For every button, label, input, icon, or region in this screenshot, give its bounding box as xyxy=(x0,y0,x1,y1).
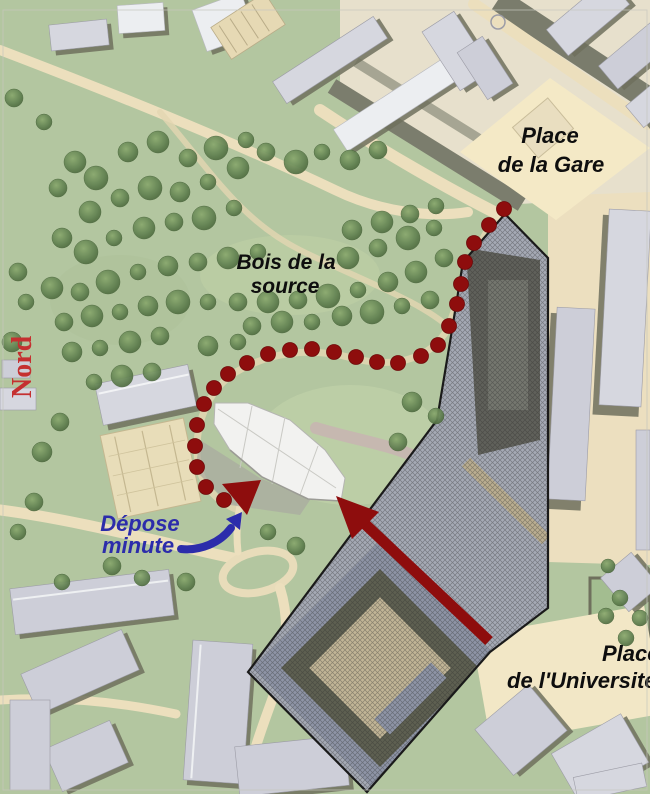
tree xyxy=(340,150,360,170)
tree xyxy=(10,524,26,540)
tree xyxy=(227,157,249,179)
route-dot xyxy=(190,460,205,475)
tree xyxy=(25,493,43,511)
tree xyxy=(612,590,628,606)
tree xyxy=(158,256,178,276)
tree xyxy=(271,311,293,333)
tree xyxy=(18,294,34,310)
site-plan-map: Place de la Gare Bois de la source Nord … xyxy=(0,0,650,794)
route-dot xyxy=(391,356,406,371)
tree xyxy=(138,176,162,200)
tree xyxy=(428,198,444,214)
route-dot xyxy=(414,349,429,364)
tree xyxy=(81,305,103,327)
tree xyxy=(119,331,141,353)
buildings-bottom-left-part xyxy=(10,700,50,790)
tree xyxy=(243,317,261,335)
label-universite-line1: Place xyxy=(602,641,650,666)
tree xyxy=(133,217,155,239)
tree xyxy=(111,189,129,207)
tree xyxy=(428,408,444,424)
tree xyxy=(32,442,52,462)
route-dot xyxy=(188,439,203,454)
tree xyxy=(118,142,138,162)
route-dot xyxy=(199,480,214,495)
tree xyxy=(51,413,69,431)
tree xyxy=(84,166,108,190)
label-nord: Nord xyxy=(7,335,38,398)
route-dot xyxy=(305,342,320,357)
tree xyxy=(426,220,442,236)
label-bois-line2: source xyxy=(251,275,320,298)
tree xyxy=(229,293,247,311)
tree xyxy=(435,249,453,267)
tree xyxy=(41,277,63,299)
tree xyxy=(189,253,207,271)
tree xyxy=(204,136,228,160)
route-dot xyxy=(327,345,342,360)
tree xyxy=(106,230,122,246)
route-dot xyxy=(431,338,446,353)
tree xyxy=(54,574,70,590)
tree xyxy=(316,284,340,308)
route-dot xyxy=(261,347,276,362)
tree xyxy=(9,263,27,281)
tree xyxy=(52,228,72,248)
buildings-mid-left-part xyxy=(100,418,201,519)
route-dot xyxy=(454,277,469,292)
label-universite-line2: de l'Université xyxy=(507,668,650,693)
tree xyxy=(287,537,305,555)
tree xyxy=(143,363,161,381)
tree xyxy=(49,179,67,197)
tree xyxy=(238,132,254,148)
route-dot xyxy=(370,355,385,370)
tree xyxy=(601,559,615,573)
label-depose-minute: Dépose minute xyxy=(100,511,186,558)
tree xyxy=(402,392,422,412)
map-canvas: Place de la Gare Bois de la source Nord … xyxy=(0,0,650,794)
tree xyxy=(74,240,98,264)
tree xyxy=(257,143,275,161)
route-dot xyxy=(349,350,364,365)
tree xyxy=(405,261,427,283)
tree xyxy=(200,174,216,190)
tree xyxy=(166,290,190,314)
tree xyxy=(350,282,366,298)
buildings-top-left-part-part xyxy=(117,2,165,33)
route-dot xyxy=(190,418,205,433)
tree xyxy=(96,270,120,294)
route-dot xyxy=(283,343,298,358)
tree xyxy=(170,182,190,202)
tree xyxy=(226,200,242,216)
tree xyxy=(36,114,52,130)
tree xyxy=(79,201,101,223)
tree xyxy=(369,141,387,159)
tree xyxy=(111,365,133,387)
tree xyxy=(134,570,150,586)
tree xyxy=(332,306,352,326)
buildings-right-column-part xyxy=(636,430,650,550)
tree xyxy=(284,150,308,174)
tree xyxy=(360,300,384,324)
tree xyxy=(304,314,320,330)
tree xyxy=(378,272,398,292)
route-dot xyxy=(450,297,465,312)
label-gare-line2: de la Gare xyxy=(498,152,604,177)
tree xyxy=(147,131,169,153)
tree xyxy=(64,151,86,173)
tree xyxy=(371,211,393,233)
tree xyxy=(177,573,195,591)
tree xyxy=(55,313,73,331)
route-dot xyxy=(482,218,497,233)
tree xyxy=(401,205,419,223)
route-dot xyxy=(221,367,236,382)
label-gare-line1: Place xyxy=(521,123,579,148)
route-dot xyxy=(458,255,473,270)
tree xyxy=(198,336,218,356)
route-dot xyxy=(207,381,222,396)
tree xyxy=(103,557,121,575)
tree xyxy=(112,304,128,320)
buildings-top-left-part xyxy=(117,2,169,38)
route-dot xyxy=(497,202,512,217)
tree xyxy=(71,283,89,301)
tree xyxy=(598,608,614,624)
tree xyxy=(421,291,439,309)
label-depose-line2: minute xyxy=(102,533,174,558)
tree xyxy=(342,220,362,240)
tree xyxy=(192,206,216,230)
tree xyxy=(165,213,183,231)
route-dot xyxy=(240,356,255,371)
tree xyxy=(130,264,146,280)
tree xyxy=(86,374,102,390)
tree xyxy=(62,342,82,362)
route-dot xyxy=(467,236,482,251)
buildings-top-left-part xyxy=(49,19,114,56)
tree xyxy=(151,327,169,345)
tree xyxy=(632,610,648,626)
tree xyxy=(314,144,330,160)
tree xyxy=(389,433,407,451)
tree xyxy=(200,294,216,310)
tree xyxy=(369,239,387,257)
label-bois-line1: Bois de la xyxy=(236,251,336,274)
tree xyxy=(138,296,158,316)
tree xyxy=(92,340,108,356)
route-dot xyxy=(217,493,232,508)
tree xyxy=(179,149,197,167)
tree xyxy=(260,524,276,540)
route-dot xyxy=(442,319,457,334)
tree xyxy=(396,226,420,250)
tree xyxy=(230,334,246,350)
tree xyxy=(5,89,23,107)
tree xyxy=(394,298,410,314)
route-dot xyxy=(197,397,212,412)
